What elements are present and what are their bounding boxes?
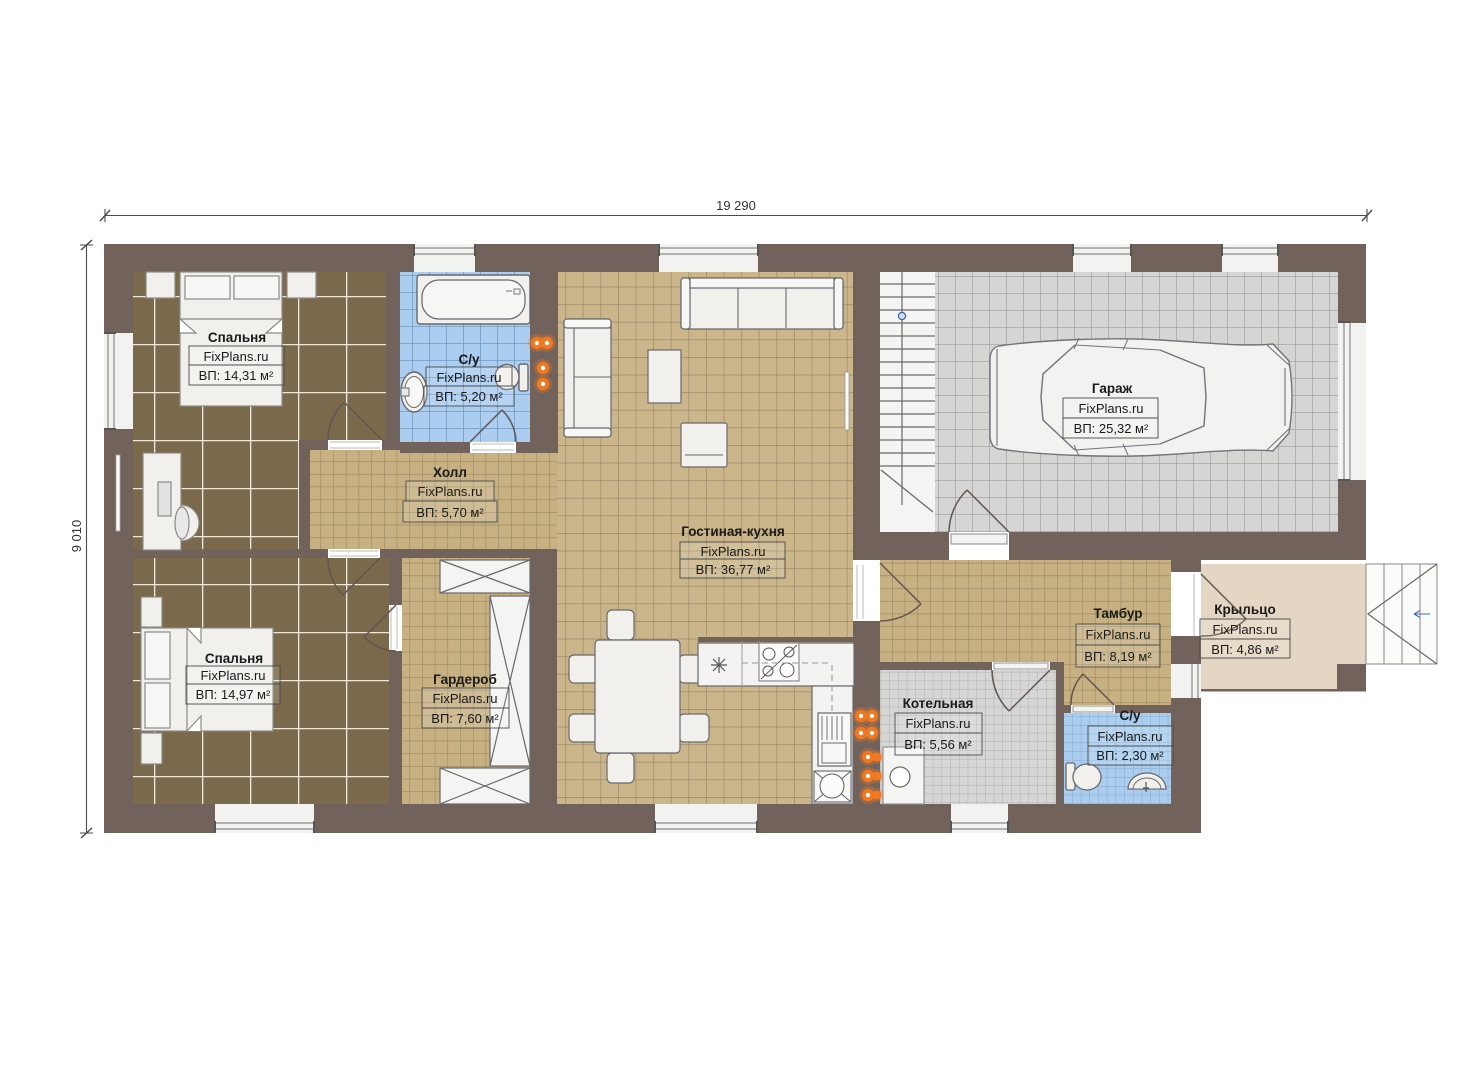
- svg-text:Гараж: Гараж: [1092, 381, 1133, 396]
- svg-text:Котельная: Котельная: [903, 696, 974, 711]
- svg-text:FixPlans.ru: FixPlans.ru: [432, 691, 497, 706]
- svg-text:ВП: 5,20 м²: ВП: 5,20 м²: [435, 389, 503, 404]
- svg-text:Крыльцо: Крыльцо: [1214, 602, 1275, 617]
- svg-text:FixPlans.ru: FixPlans.ru: [1078, 401, 1143, 416]
- svg-text:FixPlans.ru: FixPlans.ru: [905, 716, 970, 731]
- svg-text:FixPlans.ru: FixPlans.ru: [1085, 627, 1150, 642]
- svg-text:ВП: 5,56 м²: ВП: 5,56 м²: [904, 737, 972, 752]
- svg-text:9 010: 9 010: [69, 520, 84, 553]
- svg-text:ВП: 4,86 м²: ВП: 4,86 м²: [1211, 642, 1279, 657]
- svg-text:ВП: 2,30 м²: ВП: 2,30 м²: [1096, 748, 1164, 763]
- svg-text:FixPlans.ru: FixPlans.ru: [436, 370, 501, 385]
- svg-text:Холл: Холл: [433, 465, 467, 480]
- svg-text:Гардероб: Гардероб: [433, 672, 497, 687]
- svg-text:ВП: 8,19 м²: ВП: 8,19 м²: [1084, 649, 1152, 664]
- svg-text:Спальня: Спальня: [208, 330, 266, 345]
- svg-text:Спальня: Спальня: [205, 651, 263, 666]
- svg-text:С/у: С/у: [458, 352, 480, 367]
- svg-text:FixPlans.ru: FixPlans.ru: [700, 544, 765, 559]
- svg-text:ВП: 14,31 м²: ВП: 14,31 м²: [199, 368, 274, 383]
- svg-text:FixPlans.ru: FixPlans.ru: [1097, 729, 1162, 744]
- svg-text:ВП: 7,60 м²: ВП: 7,60 м²: [431, 711, 499, 726]
- svg-text:FixPlans.ru: FixPlans.ru: [417, 484, 482, 499]
- svg-text:С/у: С/у: [1119, 708, 1141, 723]
- svg-text:ВП: 5,70 м²: ВП: 5,70 м²: [416, 505, 484, 520]
- svg-text:Тамбур: Тамбур: [1094, 606, 1143, 621]
- svg-text:FixPlans.ru: FixPlans.ru: [203, 349, 268, 364]
- svg-text:ВП: 25,32 м²: ВП: 25,32 м²: [1074, 421, 1149, 436]
- svg-text:Гостиная-кухня: Гостиная-кухня: [681, 524, 784, 539]
- svg-text:19 290: 19 290: [716, 198, 756, 213]
- svg-text:FixPlans.ru: FixPlans.ru: [1212, 622, 1277, 637]
- svg-text:ВП: 14,97 м²: ВП: 14,97 м²: [196, 687, 271, 702]
- svg-text:FixPlans.ru: FixPlans.ru: [200, 668, 265, 683]
- svg-text:ВП: 36,77 м²: ВП: 36,77 м²: [696, 562, 771, 577]
